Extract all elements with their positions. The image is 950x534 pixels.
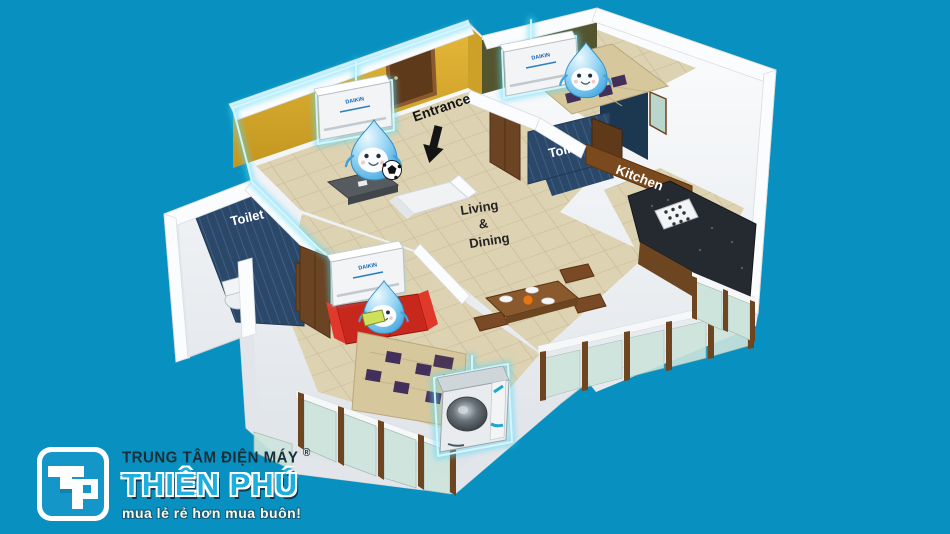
brand-name: THIÊN PHÚ (122, 469, 323, 500)
soccer-ball (383, 161, 402, 180)
advertisement-image: { "scene": { "background_color": "#0891c… (0, 0, 950, 534)
registered-mark: ® (303, 447, 311, 459)
brand-tagline: mua lẻ rẻ hơn mua buôn! (122, 506, 323, 520)
brand-logo-icon (36, 446, 110, 522)
ac-outdoor-unit (437, 366, 509, 452)
brand-line1: TRUNG TÂM ĐIỆN MÁY ® (122, 448, 311, 466)
brand-logo: TRUNG TÂM ĐIỆN MÁY ® THIÊN PHÚ mua lẻ rẻ… (36, 446, 323, 522)
